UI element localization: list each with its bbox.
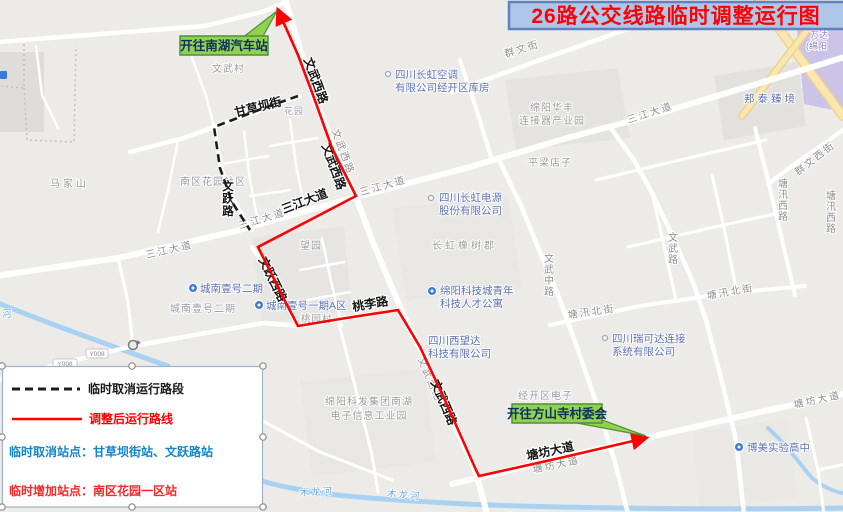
selection-handle[interactable] bbox=[129, 504, 135, 510]
road-label-tangxun-west-a: 塘汛西路 bbox=[776, 177, 788, 222]
callout-north-label: 开往南湖汽车站 bbox=[180, 38, 268, 53]
road-label-tangxun-west-b: 塘汛西路 bbox=[824, 189, 836, 234]
legend-box[interactable]: 临时取消运行路段 调整后运行路线 临时取消站点：甘草坝街站、文跃路站 临时增加站… bbox=[0, 363, 266, 510]
legend-added-stops: 临时增加站点：南区花园一区站 bbox=[9, 483, 177, 498]
place-label-huayuan: 花园 bbox=[284, 105, 304, 116]
place-label-kefa-1: 绵阳科发集团南湖 bbox=[325, 395, 413, 408]
road-label-wenwu: 文武路 bbox=[666, 231, 678, 265]
road-label-wenwu-mid: 文武中路 bbox=[542, 252, 554, 297]
place-label-nanqu-huayuan-shequ: 南区花园社区 bbox=[180, 175, 246, 188]
poi-label-xiwangda-2: 科技有限公司 bbox=[428, 347, 491, 360]
place-label-wenwucun: 文武村 bbox=[212, 62, 245, 75]
poi-pin-dot bbox=[738, 446, 741, 449]
poi-label-wanda: 万达 bbox=[810, 29, 828, 40]
place-label-majiashan: 马家山 bbox=[50, 177, 89, 190]
selection-handle[interactable] bbox=[260, 434, 266, 440]
place-label-huafeng-1: 绵阳华丰 bbox=[530, 101, 574, 114]
poi-label-changhong-kongtiao-2: 有限公司经开区库房 bbox=[395, 81, 490, 94]
poi-pin-dot bbox=[192, 287, 195, 290]
place-label-jingkaiqu: 经开区电子 bbox=[518, 389, 573, 402]
river-label-he: 河 bbox=[2, 308, 14, 320]
map-poi-chip bbox=[0, 71, 7, 79]
poi-label-changhong-kongtiao-1: 四川长虹空调 bbox=[395, 68, 458, 81]
poi-label-ruikeda-1: 四川瑞可达连接 bbox=[612, 332, 686, 345]
callout-south-label: 开往方山寺村委会 bbox=[507, 406, 608, 421]
legend-cancelled-segment-label: 临时取消运行路段 bbox=[88, 381, 185, 396]
selection-handle[interactable] bbox=[0, 504, 5, 510]
poi-label-keji-gongyu-2: 科技人才公寓 bbox=[440, 297, 503, 310]
place-label-pingliangdianzi: 平梁店子 bbox=[528, 156, 572, 169]
legend-adjusted-route-label: 调整后运行路线 bbox=[89, 411, 173, 426]
poi-label-xiwangda-1: 四川西望达 bbox=[428, 334, 481, 347]
bus-route-map-page: Y008 Y008 三江大道 三江大道 三江大道 三江大道 文武西路 文武西路 … bbox=[0, 0, 843, 512]
place-label-chengnan-erqi-plain: 城南壹号二期 bbox=[170, 302, 236, 315]
selection-handle[interactable] bbox=[129, 363, 135, 369]
selection-handle[interactable] bbox=[0, 363, 5, 369]
poi-pin-dot bbox=[431, 290, 434, 293]
selection-handle[interactable] bbox=[260, 363, 266, 369]
place-label-kefa-2: 电子信息工业园 bbox=[331, 409, 408, 422]
poi-label-chengnan-erqi: 城南壹号二期 bbox=[200, 282, 263, 295]
poi-circle-icon bbox=[386, 72, 391, 77]
place-label-wangyuan: 望园 bbox=[300, 239, 322, 252]
page-title: 26路公交线路临时调整运行图 bbox=[531, 4, 820, 28]
poi-circle-icon bbox=[603, 336, 608, 341]
poi-label-bomei: 博美实验高中 bbox=[747, 441, 810, 454]
river-label-mulonghe-a: 木龙河 bbox=[299, 485, 334, 499]
map-canvas[interactable]: Y008 Y008 三江大道 三江大道 三江大道 三江大道 文武西路 文武西路 … bbox=[0, 0, 843, 512]
title-banner[interactable]: 26路公交线路临时调整运行图 bbox=[509, 2, 843, 29]
place-label-huafeng-2: 连接器产业园 bbox=[519, 114, 585, 127]
poi-label-changhong-dianyuan-2: 股份有限公司 bbox=[439, 204, 502, 217]
y008-badge: Y008 bbox=[89, 351, 105, 358]
legend-cancelled-stops: 临时取消站点：甘草坝街站、文跃路站 bbox=[9, 444, 213, 459]
poi-label-mianyang: (绵阳 bbox=[806, 40, 827, 51]
poi-pin-dot bbox=[258, 304, 261, 307]
poi-label-keji-gongyu-1: 绵阳科技城青年 bbox=[440, 284, 514, 297]
poi-label-bangtai: 邦泰臻境 bbox=[744, 92, 798, 105]
poi-label-ruikeda-2: 系统有限公司 bbox=[612, 345, 675, 358]
selection-handle[interactable] bbox=[260, 504, 266, 510]
poi-label-changhong-dianyuan-1: 四川长虹电源 bbox=[439, 191, 502, 204]
selection-handle[interactable] bbox=[0, 434, 5, 440]
poi-circle-icon bbox=[429, 196, 434, 201]
place-label-xiangshujun: 长虹橡树郡 bbox=[432, 239, 497, 252]
